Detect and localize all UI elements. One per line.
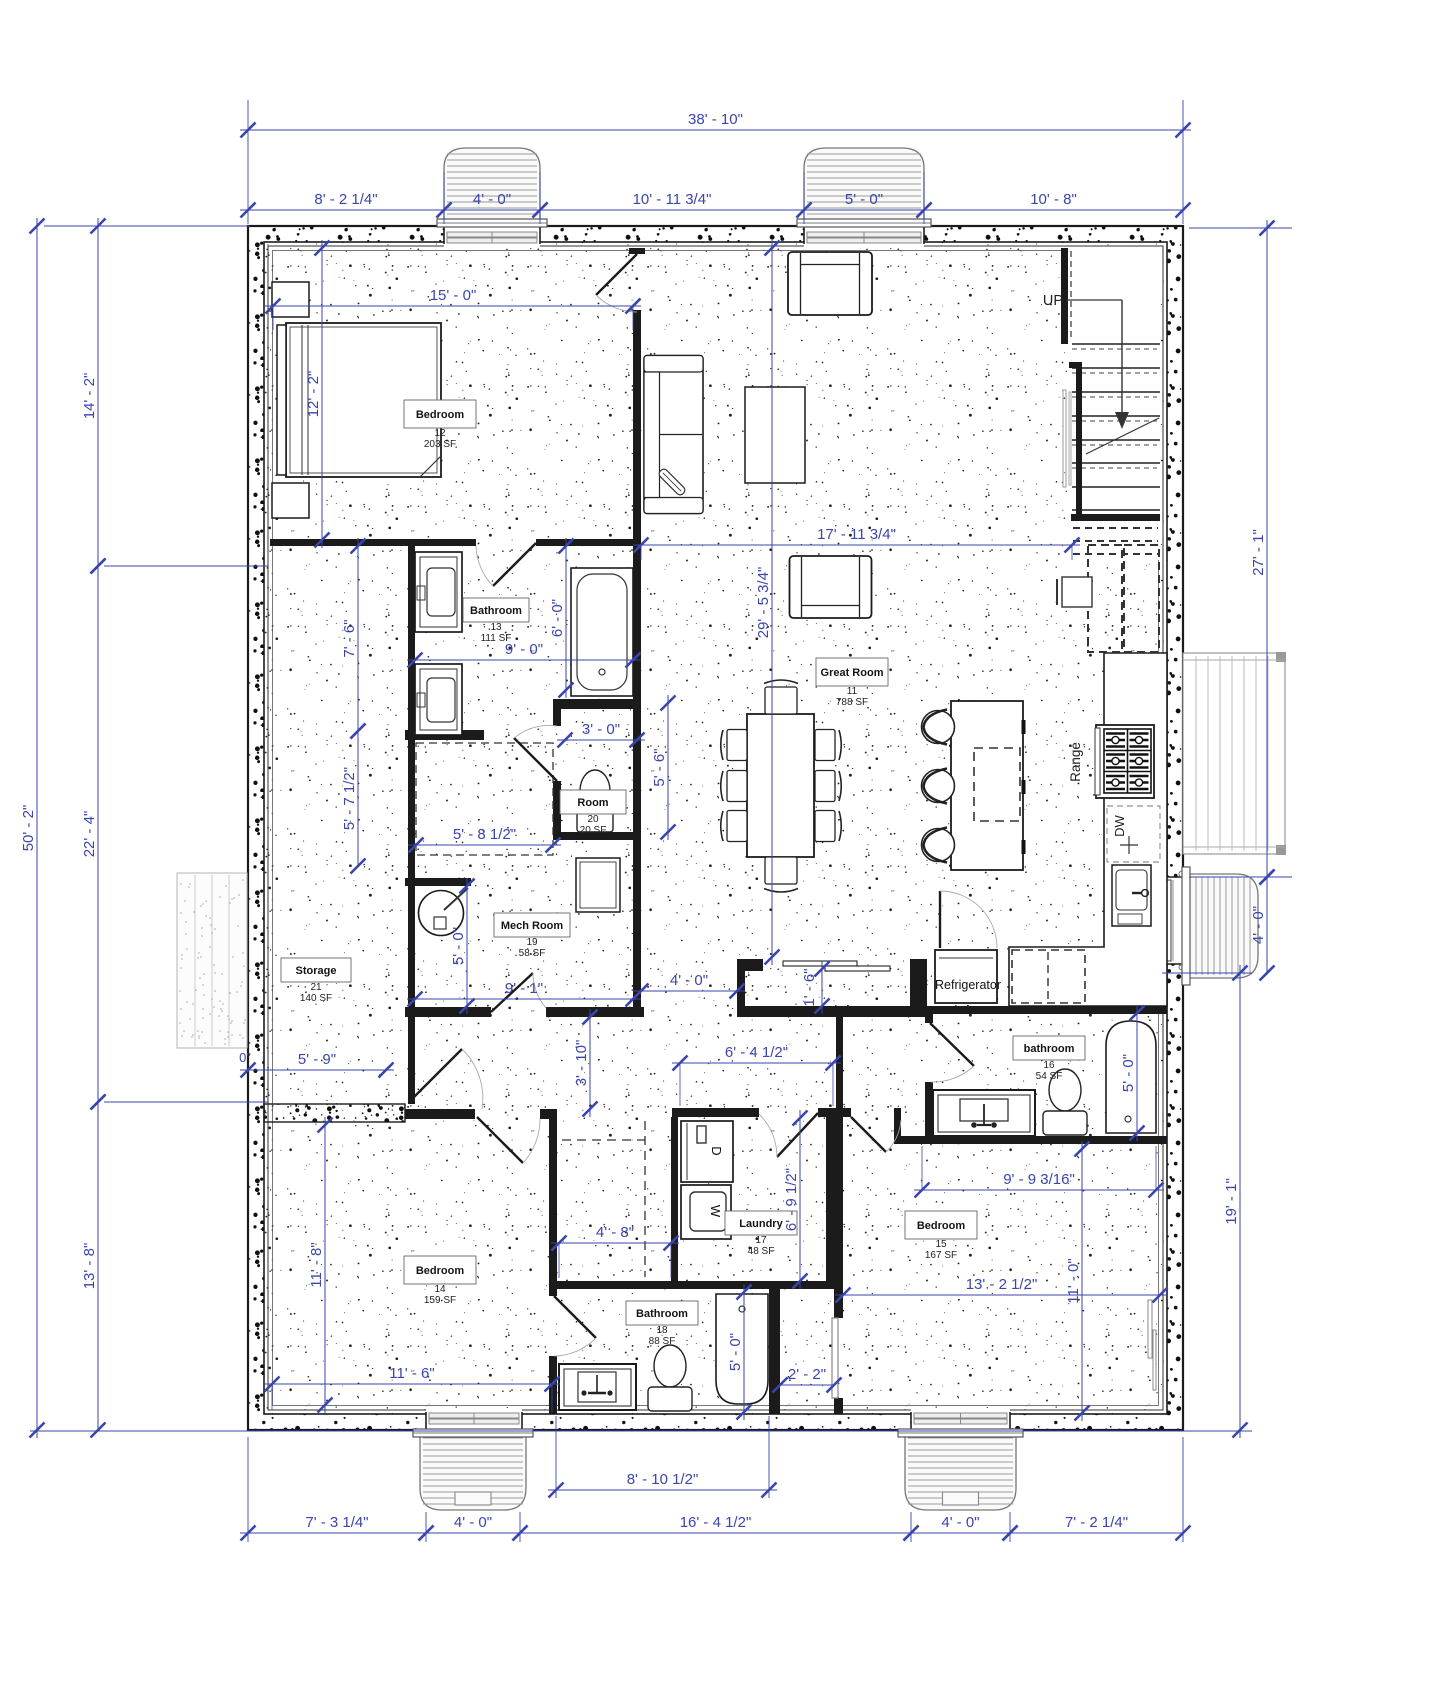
svg-text:0": 0": [239, 1050, 251, 1065]
svg-text:11' - 0": 11' - 0": [1065, 1258, 1082, 1303]
svg-text:5' - 7 1/2": 5' - 7 1/2": [341, 767, 358, 830]
svg-text:Bedroom: Bedroom: [416, 1265, 465, 1277]
svg-text:15: 15: [935, 1239, 947, 1250]
svg-text:20: 20: [587, 814, 599, 825]
svg-text:788 SF: 788 SF: [836, 697, 868, 708]
svg-text:12' - 2": 12' - 2": [305, 371, 322, 418]
svg-text:5' - 9": 5' - 9": [298, 1051, 336, 1068]
svg-text:Bedroom: Bedroom: [416, 409, 465, 421]
svg-text:9' - 0": 9' - 0": [505, 641, 543, 658]
svg-text:159 SF: 159 SF: [424, 1295, 456, 1306]
svg-text:22' - 4": 22' - 4": [81, 811, 98, 858]
svg-text:16: 16: [1043, 1060, 1055, 1071]
svg-text:17: 17: [755, 1235, 767, 1246]
svg-text:Mech Room: Mech Room: [501, 920, 564, 932]
svg-text:4' - 0": 4' - 0": [941, 1514, 979, 1531]
svg-text:15' - 0": 15' - 0": [430, 287, 477, 304]
svg-text:5' - 6": 5' - 6": [651, 748, 668, 786]
svg-text:8' - 2 1/4": 8' - 2 1/4": [314, 191, 377, 208]
svg-text:4' - 0": 4' - 0": [670, 972, 708, 989]
svg-text:7' - 2 1/4": 7' - 2 1/4": [1065, 1514, 1128, 1531]
svg-text:16' - 4 1/2": 16' - 4 1/2": [680, 1514, 752, 1531]
svg-text:2' - 2": 2' - 2": [788, 1366, 826, 1383]
svg-text:4' - 8": 4' - 8": [596, 1224, 634, 1241]
svg-text:7' - 3 1/4": 7' - 3 1/4": [305, 1514, 368, 1531]
svg-text:167 SF: 167 SF: [925, 1250, 957, 1261]
svg-text:DW: DW: [1112, 814, 1127, 836]
svg-text:UP: UP: [1043, 293, 1063, 309]
svg-text:9' - 1": 9' - 1": [505, 980, 543, 997]
svg-text:11: 11: [847, 686, 858, 697]
svg-text:Bathroom: Bathroom: [470, 605, 522, 617]
svg-text:5' - 0": 5' - 0": [727, 1333, 744, 1371]
svg-text:Range: Range: [1068, 742, 1083, 782]
svg-text:12: 12: [434, 428, 446, 439]
svg-text:6' - 4 1/2": 6' - 4 1/2": [725, 1044, 788, 1061]
svg-text:Storage: Storage: [296, 965, 337, 977]
svg-text:88 SF: 88 SF: [649, 1336, 676, 1347]
svg-text:38' - 10": 38' - 10": [688, 111, 743, 128]
svg-text:10' - 11 3/4": 10' - 11 3/4": [633, 191, 712, 208]
svg-text:21: 21: [310, 982, 322, 993]
svg-text:Bathroom: Bathroom: [636, 1308, 688, 1320]
svg-text:13' - 8": 13' - 8": [81, 1243, 98, 1290]
svg-text:Room: Room: [577, 797, 608, 809]
svg-text:11' - 6": 11' - 6": [389, 1365, 434, 1382]
svg-text:5' - 0": 5' - 0": [845, 191, 883, 208]
svg-text:8' - 10 1/2": 8' - 10 1/2": [627, 1471, 699, 1488]
svg-text:17' - 11 3/4": 17' - 11 3/4": [817, 526, 896, 543]
svg-text:Laundry: Laundry: [739, 1218, 783, 1230]
svg-text:14: 14: [434, 1284, 446, 1295]
svg-text:9' - 9 3/16": 9' - 9 3/16": [1003, 1171, 1075, 1188]
svg-text:19' - 1": 19' - 1": [1223, 1178, 1240, 1225]
svg-text:5' - 8 1/2": 5' - 8 1/2": [453, 826, 516, 843]
svg-text:140 SF: 140 SF: [300, 993, 332, 1004]
svg-text:10' - 8": 10' - 8": [1030, 191, 1077, 208]
svg-text:Bedroom: Bedroom: [917, 1220, 966, 1232]
svg-text:W: W: [708, 1205, 723, 1218]
svg-text:14' - 2": 14' - 2": [81, 373, 98, 420]
svg-text:4' - 0": 4' - 0": [473, 191, 511, 208]
svg-text:3' - 0": 3' - 0": [582, 721, 620, 738]
svg-text:29' - 5 3/4": 29' - 5 3/4": [755, 567, 772, 639]
svg-text:1' - 6": 1' - 6": [801, 968, 818, 1006]
svg-text:4' - 0": 4' - 0": [1250, 906, 1267, 944]
svg-text:5' - 0": 5' - 0": [1120, 1054, 1137, 1092]
svg-text:bathroom: bathroom: [1024, 1043, 1075, 1055]
svg-text:3' - 10": 3' - 10": [573, 1040, 590, 1087]
svg-text:13: 13: [490, 622, 502, 633]
svg-text:54 SF: 54 SF: [1036, 1071, 1063, 1082]
svg-text:Refrigerator: Refrigerator: [935, 978, 1001, 992]
svg-text:6' - 9 1/2": 6' - 9 1/2": [783, 1168, 800, 1231]
svg-text:27' - 1": 27' - 1": [1250, 529, 1267, 576]
svg-text:20 SF: 20 SF: [580, 825, 607, 836]
svg-text:50' - 2": 50' - 2": [20, 805, 37, 852]
svg-text:13' - 2 1/2": 13' - 2 1/2": [966, 1276, 1038, 1293]
svg-text:11' - 8": 11' - 8": [308, 1242, 325, 1287]
svg-text:5' - 0": 5' - 0": [450, 927, 467, 965]
svg-text:48 SF: 48 SF: [748, 1246, 775, 1257]
svg-text:7' - 6": 7' - 6": [341, 619, 358, 657]
svg-text:Great Room: Great Room: [821, 667, 884, 679]
svg-text:18: 18: [656, 1325, 668, 1336]
svg-text:6' - 0": 6' - 0": [549, 599, 566, 637]
svg-text:203 SF: 203 SF: [424, 439, 456, 450]
svg-text:19: 19: [526, 937, 538, 948]
svg-text:D: D: [709, 1146, 724, 1155]
svg-text:4' - 0": 4' - 0": [454, 1514, 492, 1531]
svg-text:58 SF: 58 SF: [519, 948, 546, 959]
